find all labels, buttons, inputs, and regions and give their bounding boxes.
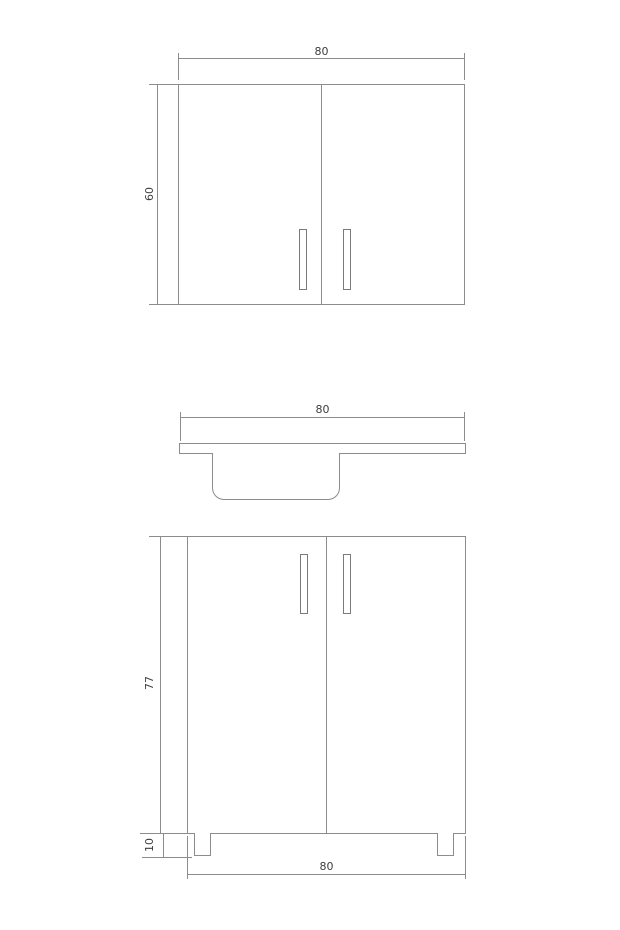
wall-height-dim-label: 60 [144, 184, 156, 204]
wall-height-tick-top [149, 84, 178, 85]
base-height-tick-top [149, 536, 187, 537]
wall-width-dim-line [178, 58, 465, 59]
technical-drawing-canvas: 80 60 80 77 10 80 [0, 0, 620, 930]
wall-cabinet-door-divider [321, 84, 322, 305]
leg-height-dim-label: 10 [144, 835, 156, 855]
counter-width-dim-line [180, 417, 465, 418]
wall-height-dim-line [157, 84, 158, 305]
base-width-dim-label: 80 [187, 861, 466, 873]
wall-cabinet-handle-right [343, 229, 351, 290]
base-cabinet-handle-left [300, 554, 308, 614]
base-cabinet-door-divider [326, 536, 327, 834]
base-cabinet-handle-right [343, 554, 351, 614]
sink-basin [212, 453, 340, 500]
base-width-dim-line [187, 874, 466, 875]
leg-height-dim-line [163, 833, 164, 858]
base-cabinet-leg-left [194, 833, 211, 856]
leg-height-tick-bottom [142, 857, 192, 858]
wall-height-tick-bottom [149, 304, 178, 305]
counter-width-dim-label: 80 [180, 404, 465, 416]
base-height-dim-label: 77 [144, 673, 156, 693]
wall-width-dim-label: 80 [178, 46, 465, 58]
base-height-dim-line [160, 536, 161, 834]
base-cabinet-leg-right [437, 833, 454, 856]
wall-cabinet-handle-left [299, 229, 307, 290]
